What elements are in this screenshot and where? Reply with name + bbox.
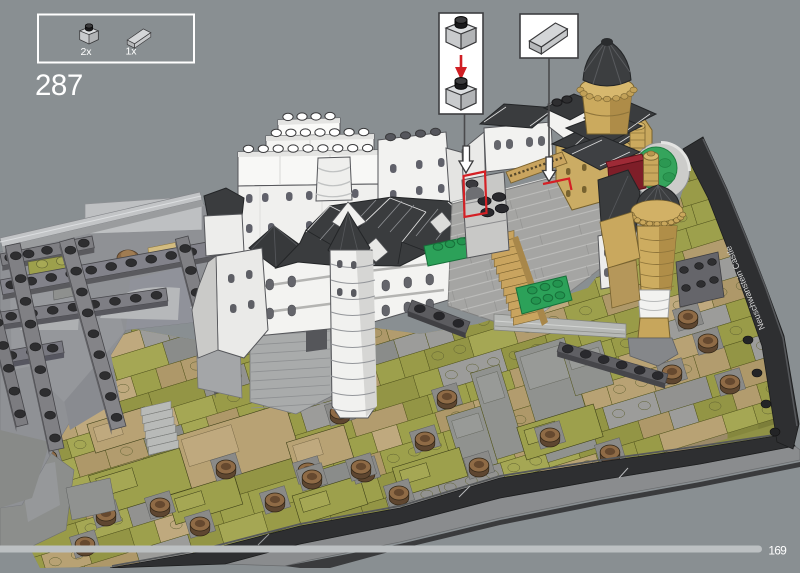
svg-text:287: 287 [35, 69, 83, 102]
svg-text:169: 169 [768, 544, 787, 558]
svg-text:1x: 1x [125, 46, 137, 58]
svg-text:2x: 2x [80, 46, 92, 58]
